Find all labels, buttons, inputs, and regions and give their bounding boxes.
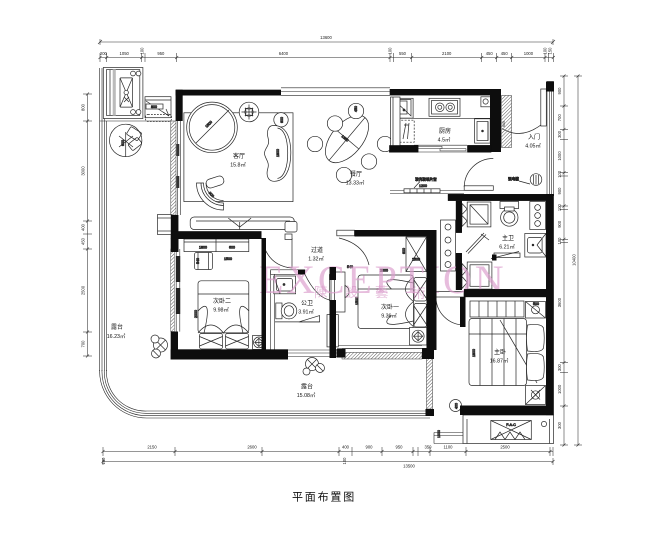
svg-text:入门: 入门 [528,133,540,141]
svg-text:400: 400 [81,223,86,231]
svg-text:900: 900 [557,220,562,228]
svg-text:16.87㎡: 16.87㎡ [490,357,509,365]
svg-text:露台: 露台 [301,383,313,391]
svg-text:100: 100 [388,47,393,55]
svg-text:2000: 2000 [194,310,198,318]
svg-text:1800: 1800 [276,149,280,157]
svg-text:100: 100 [342,457,347,465]
svg-text:1100: 1100 [443,445,453,450]
svg-text:1000: 1000 [557,384,562,394]
svg-text:800: 800 [81,103,86,111]
svg-text:1000: 1000 [557,151,562,161]
svg-text:700: 700 [557,114,562,122]
svg-text:厨房: 厨房 [439,127,451,135]
svg-text:100: 100 [557,237,562,245]
svg-text:平面布置图: 平面布置图 [292,491,356,504]
svg-text:15.08㎡: 15.08㎡ [297,391,316,399]
svg-text:3600: 3600 [557,297,562,307]
svg-text:1500: 1500 [224,257,232,261]
svg-text:4.05㎡: 4.05㎡ [525,142,541,150]
svg-text:800: 800 [151,105,157,109]
svg-text:过道: 过道 [311,246,323,254]
svg-text:2500: 2500 [500,445,510,450]
svg-text:100: 100 [139,47,144,55]
svg-text:6.21㎡: 6.21㎡ [499,243,515,251]
svg-text:540: 540 [196,258,200,264]
svg-text:200: 200 [100,51,108,56]
svg-text:2600: 2600 [247,445,257,450]
svg-text:1800: 1800 [472,349,476,357]
svg-text:9.98㎡: 9.98㎡ [213,306,229,314]
svg-text:16.23㎡: 16.23㎡ [107,332,126,340]
svg-text:550: 550 [399,51,407,56]
svg-text:500: 500 [533,302,539,306]
svg-text:陳: 陳 [314,285,328,300]
svg-text:2150: 2150 [147,445,157,450]
svg-text:主卧: 主卧 [494,348,506,356]
svg-text:400: 400 [455,403,459,409]
svg-text:6400: 6400 [279,51,289,56]
svg-text:主卫: 主卫 [502,234,514,242]
svg-text:15.8㎡: 15.8㎡ [230,161,246,169]
svg-text:300: 300 [557,130,562,138]
svg-text:1800: 1800 [199,246,207,250]
svg-text:1200: 1200 [419,184,427,188]
svg-text:900: 900 [557,187,562,195]
svg-text:1000: 1000 [524,51,534,56]
svg-text:350: 350 [425,445,433,450]
svg-text:450: 450 [486,51,494,56]
svg-text:600: 600 [280,117,284,123]
svg-text:600: 600 [229,246,235,250]
svg-text:300: 300 [557,363,562,371]
svg-text:900: 900 [366,445,374,450]
svg-text:1000: 1000 [437,430,441,438]
svg-text:450: 450 [501,51,509,56]
svg-text:1.32㎡: 1.32㎡ [308,255,324,263]
svg-text:450: 450 [354,106,358,112]
svg-text:藝: 藝 [375,285,389,300]
svg-text:强电箱: 强电箱 [508,176,519,181]
svg-text:700: 700 [81,340,86,348]
svg-text:950: 950 [396,445,404,450]
svg-text:13500: 13500 [403,464,415,469]
svg-text:2500: 2500 [81,285,86,295]
svg-text:術: 術 [412,286,426,301]
svg-text:600: 600 [402,248,406,254]
svg-text:F-A-C: F-A-C [506,423,516,427]
svg-text:3.91㎡: 3.91㎡ [298,308,314,316]
svg-text:300: 300 [557,421,562,429]
svg-text:450: 450 [81,237,86,245]
svg-text:10400: 10400 [572,254,577,266]
svg-text:1050: 1050 [120,51,130,56]
svg-text:950: 950 [157,51,165,56]
svg-text:9.36㎡: 9.36㎡ [381,312,397,320]
svg-text:設: 設 [345,285,359,300]
svg-text:露台: 露台 [111,323,123,331]
svg-text:400: 400 [342,445,350,450]
svg-text:150: 150 [548,47,553,55]
svg-text:3000: 3000 [81,166,86,176]
svg-text:次卧二: 次卧二 [213,297,231,305]
svg-text:客厅: 客厅 [233,152,245,160]
svg-text:餐厅: 餐厅 [350,170,362,178]
svg-text:900: 900 [557,87,562,95]
svg-text:次卧一: 次卧一 [381,303,399,311]
svg-text:公卫: 公卫 [301,300,313,307]
svg-text:100: 100 [557,170,562,178]
svg-text:13600: 13600 [320,35,332,40]
svg-text:2100: 2100 [442,51,452,56]
svg-text:100: 100 [557,203,562,211]
svg-text:玻光玻璃片窗: 玻光玻璃片窗 [415,177,437,182]
svg-text:600: 600 [502,121,506,127]
svg-text:4.5㎡: 4.5㎡ [438,136,451,144]
svg-text:600: 600 [121,140,125,146]
svg-text:13.33㎡: 13.33㎡ [346,179,365,187]
